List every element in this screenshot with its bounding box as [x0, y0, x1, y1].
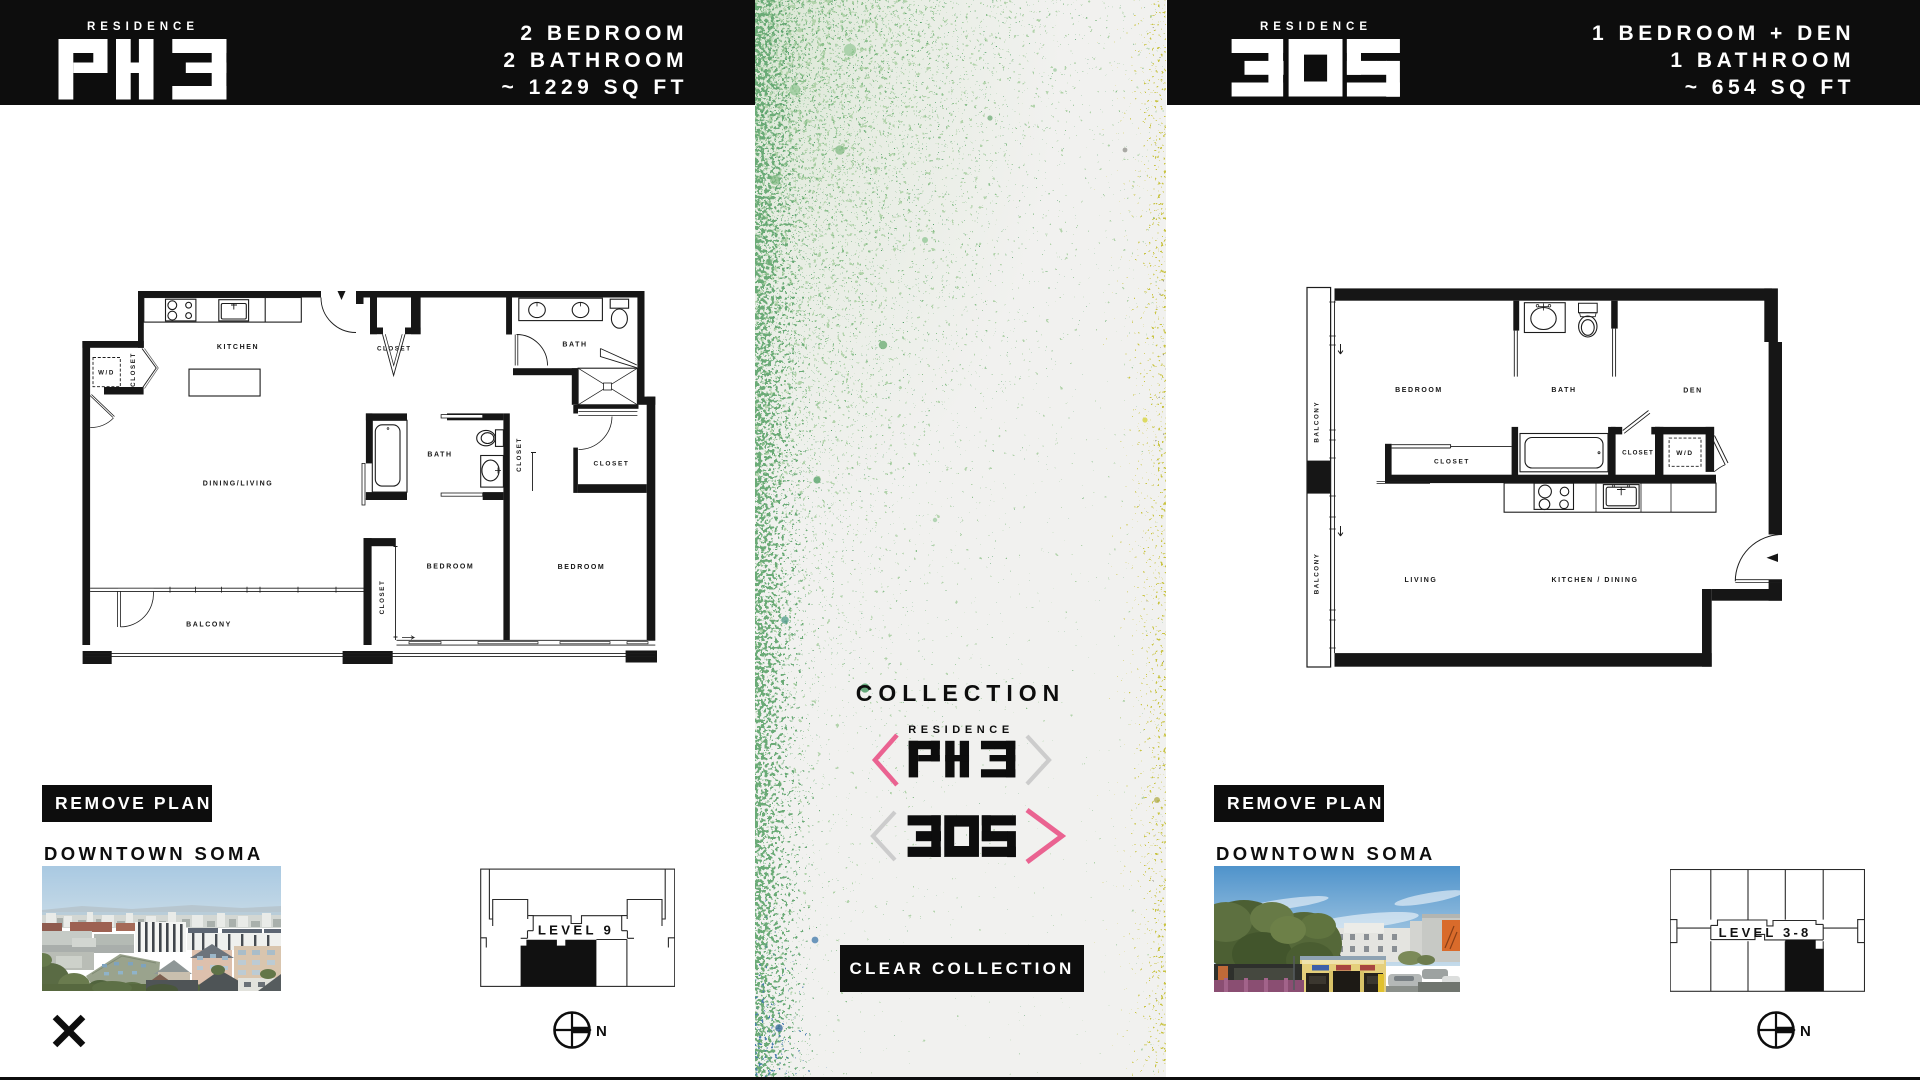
svg-text:CLOSET: CLOSET: [377, 346, 412, 353]
svg-text:BALCONY: BALCONY: [1314, 553, 1321, 595]
svg-text:BATH: BATH: [1551, 387, 1576, 394]
svg-text:KITCHEN: KITCHEN: [217, 344, 259, 351]
svg-text:BALCONY: BALCONY: [1314, 401, 1321, 443]
svg-text:LEVEL 3-8: LEVEL 3-8: [1719, 925, 1812, 940]
svg-text:LEVEL 9: LEVEL 9: [538, 923, 614, 938]
svg-text:W/D: W/D: [1676, 450, 1693, 457]
svg-text:CLOSET: CLOSET: [516, 437, 523, 472]
svg-text:BEDROOM: BEDROOM: [558, 564, 606, 571]
svg-text:BEDROOM: BEDROOM: [1395, 387, 1443, 394]
svg-text:W/D: W/D: [98, 370, 115, 377]
svg-text:DEN: DEN: [1683, 388, 1703, 395]
svg-text:DINING/LIVING: DINING/LIVING: [203, 481, 274, 488]
svg-text:KITCHEN / DINING: KITCHEN / DINING: [1551, 577, 1638, 584]
svg-text:BATH: BATH: [427, 452, 452, 459]
svg-text:BEDROOM: BEDROOM: [427, 564, 475, 571]
svg-text:CLOSET: CLOSET: [594, 461, 630, 468]
svg-text:LIVING: LIVING: [1405, 577, 1438, 584]
svg-text:CLOSET: CLOSET: [1434, 459, 1470, 466]
svg-text:N: N: [596, 1023, 607, 1040]
svg-text:BALCONY: BALCONY: [186, 622, 232, 629]
svg-text:CLOSET: CLOSET: [130, 352, 137, 387]
svg-text:N: N: [1800, 1023, 1811, 1040]
svg-text:CLOSET: CLOSET: [379, 580, 386, 615]
svg-text:CLOSET: CLOSET: [1622, 450, 1654, 457]
svg-text:BATH: BATH: [562, 342, 587, 349]
